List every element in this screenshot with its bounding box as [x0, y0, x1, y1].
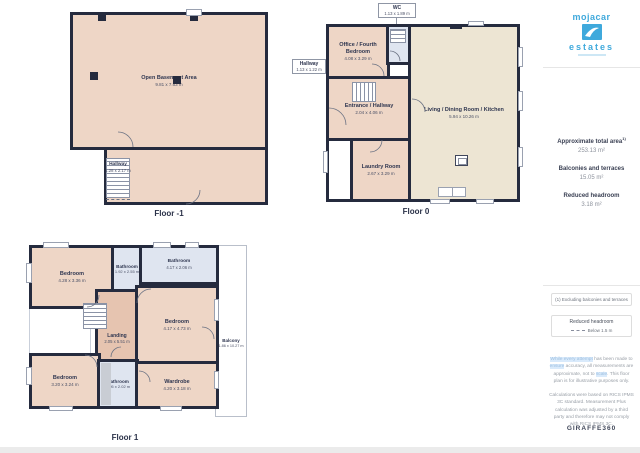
legend-box: Reduced headroom Below 1.5 m — [551, 315, 632, 337]
label-leader-line — [396, 18, 397, 24]
floor-plan-1: Balcony 1.86 x 10.27 m Bedroom 4.28 x 3.… — [25, 233, 253, 445]
stat-label: Reduced headroom — [543, 190, 640, 199]
room-dims: 4.08 x 3.29 m — [344, 56, 371, 62]
room-label: Open Basement Area — [141, 75, 196, 82]
footnote-box: (1) Excluding balconies and terraces — [551, 293, 632, 306]
room-label: Laundry Room — [362, 164, 401, 171]
stat-reduced-headroom: Reduced headroom 3.18 m² — [543, 190, 640, 208]
room-dims: 1.86 x 10.27 m — [216, 344, 246, 349]
floor-caption: Floor 0 — [312, 207, 520, 216]
window — [160, 406, 182, 411]
window — [518, 147, 523, 167]
room-dims: 1.92 x 2.55 m — [115, 269, 139, 274]
stat-label: Approximate total area1) — [543, 136, 640, 145]
stairs — [352, 82, 376, 102]
room-dims: 4.17 x 2.06 m — [166, 265, 191, 270]
room-dims: 4.20 x 3.18 m — [163, 386, 190, 392]
room-open-basement-area: Open Basement Area 9.81 x 7.63 m — [70, 12, 268, 150]
room-bathroom-2: Bathroom 4.17 x 2.06 m — [139, 245, 219, 285]
window — [476, 199, 494, 204]
agency-logo: mojacar estates — [543, 12, 640, 56]
stove-icon — [455, 155, 468, 166]
room-hallway-basement: Hallway 1.28 x 2.17 m — [92, 162, 144, 173]
stairs — [83, 303, 107, 329]
stat-value: 3.18 m² — [543, 202, 640, 208]
column — [90, 72, 98, 80]
room-dims: 2.67 x 3.29 m — [367, 171, 394, 177]
footnote-text: (1) Excluding balconies and terraces — [555, 297, 628, 302]
room-label: Office / Fourth Bedroom — [329, 42, 387, 56]
room-label: Bedroom — [165, 319, 189, 326]
window — [323, 151, 328, 173]
floor-caption: Floor 1 — [25, 433, 225, 442]
window — [518, 47, 523, 67]
window — [26, 263, 32, 283]
room-balcony: Balcony 1.86 x 10.27 m — [215, 245, 247, 417]
window — [49, 406, 73, 411]
hallway-label-box: Hallway 1.13 x 1.22 m — [292, 59, 326, 74]
disclaimer-paragraph-2: Calculations were based on RICS IPMS 3C … — [549, 392, 634, 429]
window — [518, 91, 523, 111]
agency-logo-icon — [582, 24, 602, 40]
bottom-strip — [0, 447, 640, 453]
agency-name-bottom: estates — [569, 42, 614, 52]
room-bedroom-2: Bedroom 4.17 x 4.73 m — [135, 285, 219, 365]
stat-balconies: Balconies and terraces 15.05 m² — [543, 163, 640, 181]
wc-label-box: WC 1.13 x 1.89 m — [378, 3, 416, 18]
floor-plan-0: WC 1.13 x 1.89 m Office / Fourth Bedroom… — [292, 3, 528, 220]
room-dims: 5.94 x 10.26 m — [449, 114, 479, 120]
stairs — [390, 29, 406, 43]
floor-plan-minus1: Open Basement Area 9.81 x 7.63 m Hallway… — [70, 8, 270, 220]
disclaimer-text: While every attempt has been made to ens… — [549, 356, 634, 435]
wall-tab — [450, 24, 462, 29]
room-wardrobe: Wardrobe 4.20 x 3.18 m — [135, 361, 219, 409]
column — [173, 76, 181, 84]
disclaimer-paragraph-1: While every attempt has been made to ens… — [549, 356, 634, 386]
room-dims: 2.05 x 5.51 m — [104, 339, 129, 344]
divider — [543, 67, 640, 68]
floorplan-page: Open Basement Area 9.81 x 7.63 m Hallway… — [0, 0, 640, 453]
floor-caption: Floor -1 — [70, 209, 268, 218]
room-dims: 1.28 x 2.17 m — [92, 168, 144, 173]
room-label: Wardrobe — [164, 379, 189, 386]
room-label: Bedroom — [60, 271, 84, 278]
legend-label: Below 1.5 m — [588, 328, 613, 333]
legend-title: Reduced headroom — [554, 319, 629, 325]
room-living-dining-kitchen: Living / Dining Room / Kitchen 5.94 x 10… — [408, 24, 520, 202]
reduced-headroom-dashed-line — [106, 199, 130, 200]
wall-tab — [98, 15, 106, 21]
stat-label: Balconies and terraces — [543, 163, 640, 172]
agency-name-top: mojacar — [572, 12, 610, 22]
stat-value: 15.05 m² — [543, 175, 640, 181]
window — [153, 242, 171, 248]
dashed-line-sample — [571, 330, 585, 331]
room-dims: 1.13 x 1.22 m — [295, 67, 323, 72]
area-stats: Approximate total area1) 253.13 m² Balco… — [543, 136, 640, 217]
window — [185, 242, 199, 248]
window — [43, 242, 69, 248]
divider — [543, 285, 640, 286]
room-dims: 2.04 x 4.06 m — [355, 110, 382, 116]
room-label: Entrance / Hallway — [345, 103, 394, 110]
open-void-area — [29, 307, 91, 355]
stat-value: 253.13 m² — [543, 148, 640, 154]
provider-logo: GIRAFFE360 — [543, 425, 640, 432]
room-dims: 4.28 x 3.36 m — [58, 278, 85, 284]
room-dims: 3.20 x 3.24 m — [51, 382, 78, 388]
window — [214, 371, 219, 389]
kitchen-unit — [438, 187, 466, 197]
room-office-fourth-bedroom: Office / Fourth Bedroom 4.08 x 3.29 m — [326, 24, 390, 80]
room-laundry: Laundry Room 2.67 x 3.29 m — [350, 138, 412, 202]
agency-tagline — [578, 54, 606, 56]
window — [468, 21, 484, 26]
room-dims: 4.17 x 4.73 m — [163, 326, 190, 332]
window — [26, 367, 32, 385]
room-label: Living / Dining Room / Kitchen — [424, 107, 504, 114]
window — [430, 199, 450, 204]
stat-total-area: Approximate total area1) 253.13 m² — [543, 136, 640, 154]
room-bedroom-3: Bedroom 3.20 x 3.24 m — [29, 353, 101, 409]
window — [186, 9, 202, 16]
window — [214, 299, 219, 321]
info-sidebar: mojacar estates Approximate total area1)… — [543, 0, 640, 447]
room-label: Bedroom — [53, 375, 77, 382]
room-dims: 1.13 x 1.89 m — [381, 11, 413, 16]
shower-tile — [101, 363, 111, 405]
